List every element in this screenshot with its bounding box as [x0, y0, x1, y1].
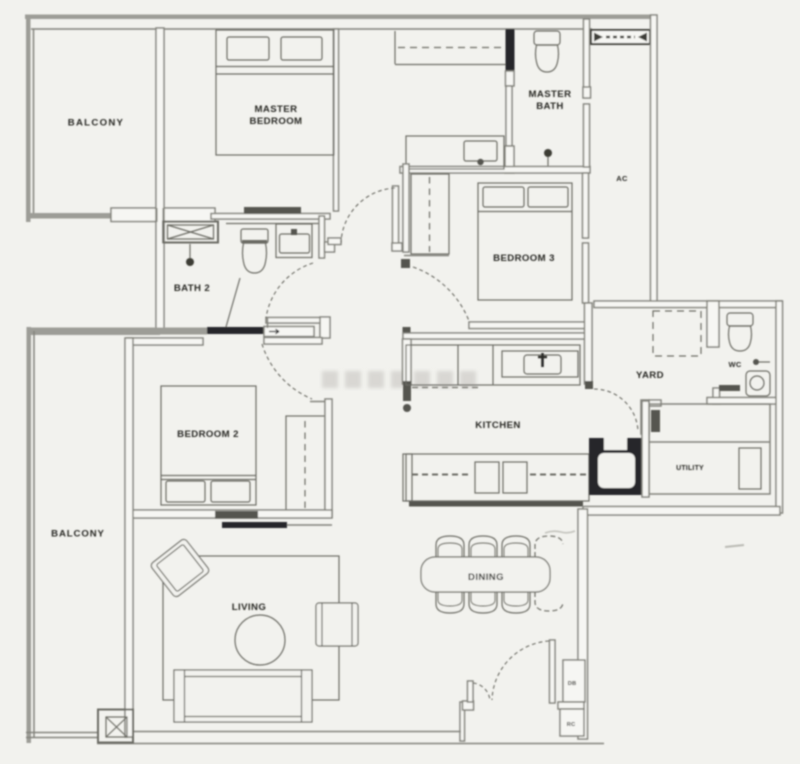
svg-text:AC: AC — [616, 174, 628, 183]
svg-text:BEDROOM 2: BEDROOM 2 — [177, 429, 239, 440]
svg-text:LIVING: LIVING — [232, 602, 266, 613]
svg-text:DB: DB — [568, 681, 577, 687]
svg-text:UTILITY: UTILITY — [676, 465, 704, 472]
svg-text:KITCHEN: KITCHEN — [475, 420, 520, 431]
svg-text:RC: RC — [567, 722, 576, 728]
svg-text:BALCONY: BALCONY — [51, 529, 105, 540]
svg-text:YARD: YARD — [636, 370, 664, 381]
svg-text:BATH: BATH — [536, 101, 564, 112]
svg-text:BALCONY: BALCONY — [68, 118, 125, 129]
svg-text:MASTER: MASTER — [255, 104, 298, 115]
svg-text:WC: WC — [728, 360, 741, 369]
svg-text:BATH 2: BATH 2 — [174, 283, 210, 294]
svg-text:BEDROOM 3: BEDROOM 3 — [493, 253, 555, 264]
svg-text:MASTER: MASTER — [529, 89, 572, 100]
svg-text:DINING: DINING — [468, 572, 504, 583]
svg-text:BEDROOM: BEDROOM — [250, 116, 303, 127]
